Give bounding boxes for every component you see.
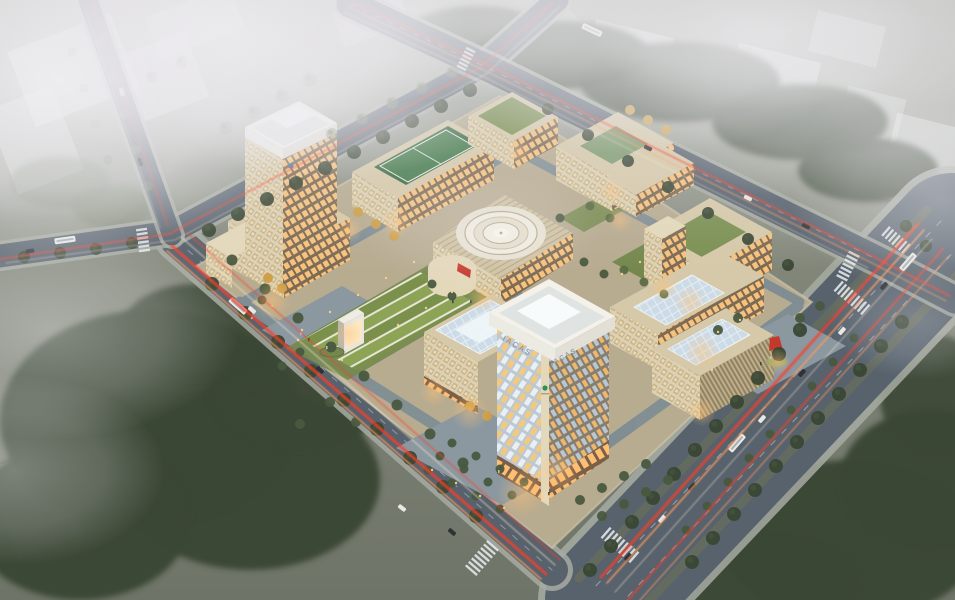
ground-light [621,273,623,275]
ground-light [425,307,427,309]
render-canvas: IACAS IACAS [0,0,955,600]
window-glow [688,398,717,427]
tree [597,511,607,521]
window-glow [650,274,679,303]
ground-light [717,331,719,333]
tree [597,483,607,493]
ground-light [397,324,399,326]
tree [392,400,403,411]
ground-light [431,469,433,471]
tree [619,471,629,481]
tree [619,499,629,509]
tree [295,419,305,429]
ground-light [341,359,343,361]
tree [575,495,585,505]
ground-light [329,311,331,313]
tree [278,362,287,371]
aerial-campus-render: IACAS IACAS [0,0,955,600]
tree [496,465,505,474]
tree [472,452,481,461]
ground-light [451,291,453,293]
tree [425,429,436,440]
person [498,470,500,473]
window-glow [684,334,719,369]
tree [359,371,370,382]
tree [600,270,609,279]
tree [325,397,335,407]
tree [829,358,838,367]
window-glow [674,286,706,318]
tree [448,439,457,448]
tree [641,459,651,469]
ground-light [479,495,481,497]
window-glow [451,393,489,431]
tree [815,301,825,311]
cas-logo-green-icon [542,385,547,390]
tree [640,278,649,287]
window-glow [334,320,363,349]
tree [293,313,304,324]
tree [663,475,673,485]
fog-patch [360,170,600,290]
fog-patch [160,10,500,180]
person [760,362,762,365]
tree [795,313,805,323]
ground-light [711,369,713,371]
window-glow [253,281,291,319]
tree [641,487,651,497]
tree [351,417,361,427]
ground-light [455,482,457,484]
ground-light [385,277,387,279]
person [326,346,328,349]
ground-light [357,294,359,296]
person [452,300,454,303]
ground-light [301,329,303,331]
tree [733,313,743,323]
window-glow [537,451,579,493]
tree [484,478,493,487]
tree [808,382,817,391]
tree [713,325,723,335]
ground-light [369,341,371,343]
person [548,492,550,495]
window-glow [420,378,449,407]
logo-nameplate [541,393,549,394]
ground-light [739,319,741,321]
